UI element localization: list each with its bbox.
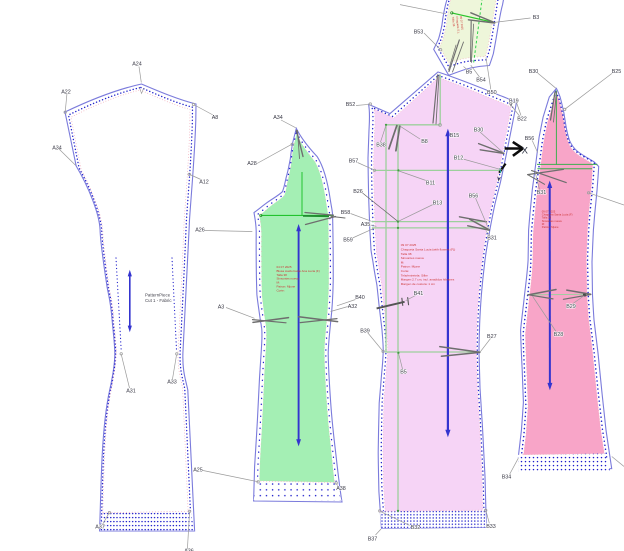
svg-text:B56: B56 — [469, 194, 479, 200]
svg-text:B8: B8 — [421, 139, 428, 145]
svg-text:A25: A25 — [193, 468, 203, 474]
svg-text:B31: B31 — [487, 236, 497, 242]
svg-text:A26: A26 — [195, 228, 205, 234]
svg-text:B15: B15 — [450, 133, 460, 139]
svg-text:A12: A12 — [199, 180, 209, 186]
svg-text:A28: A28 — [247, 161, 257, 167]
svg-text:B13: B13 — [433, 201, 443, 207]
svg-text:B40: B40 — [355, 295, 365, 301]
svg-text:B54: B54 — [476, 78, 486, 84]
svg-text:B53: B53 — [414, 30, 424, 36]
svg-text:B57: B57 — [349, 159, 359, 165]
svg-text:A8: A8 — [212, 115, 219, 121]
svg-text:B34: B34 — [502, 475, 512, 481]
svg-text:Patron: Mjune: Patron: Mjune — [542, 225, 559, 229]
svg-text:A38: A38 — [336, 486, 346, 492]
svg-text:Sinsontes nueva: Sinsontes nueva — [277, 277, 300, 281]
svg-text:B3: B3 — [533, 15, 540, 21]
svg-text:B11: B11 — [426, 181, 435, 187]
svg-text:A22: A22 — [61, 90, 71, 96]
svg-text:Cut 1 - Fabric: Cut 1 - Fabric — [145, 298, 172, 303]
svg-text:A3: A3 — [218, 305, 225, 311]
svg-text:B29: B29 — [566, 304, 576, 310]
svg-text:B56: B56 — [525, 136, 535, 142]
svg-text:X: X — [522, 145, 529, 156]
svg-text:B30: B30 — [474, 128, 484, 134]
svg-text:Sinsontes nueva: Sinsontes nueva — [542, 219, 562, 223]
svg-text:B33: B33 — [486, 524, 496, 530]
svg-text:A34: A34 — [52, 146, 62, 152]
svg-text:B59: B59 — [343, 238, 353, 244]
svg-text:B30: B30 — [529, 69, 539, 75]
svg-text:B25: B25 — [612, 69, 622, 75]
svg-text:PatternPiece: PatternPiece — [145, 293, 171, 298]
svg-text:A24: A24 — [132, 62, 142, 68]
svg-text:A32: A32 — [348, 304, 358, 310]
svg-text:B52: B52 — [346, 102, 356, 108]
svg-text:A35: A35 — [361, 222, 371, 228]
svg-text:B5: B5 — [400, 370, 407, 376]
svg-text:B38: B38 — [376, 143, 386, 149]
svg-text:B28: B28 — [554, 332, 564, 338]
svg-text:B41: B41 — [414, 291, 424, 297]
svg-text:B37: B37 — [368, 537, 378, 543]
svg-text:A37: A37 — [95, 525, 105, 531]
svg-text:B12: B12 — [454, 156, 464, 162]
svg-text:B22: B22 — [517, 117, 527, 123]
svg-text:B31: B31 — [537, 190, 547, 196]
svg-text:B39: B39 — [360, 329, 370, 335]
svg-text:B50: B50 — [487, 90, 497, 96]
svg-text:Corte:: Corte: — [277, 288, 285, 292]
svg-text:A34: A34 — [273, 115, 283, 121]
svg-text:B19: B19 — [509, 99, 519, 105]
svg-text:A31: A31 — [126, 389, 136, 395]
svg-text:B26: B26 — [353, 189, 363, 195]
svg-text:Margen de costura: 1 cm: Margen de costura: 1 cm — [401, 282, 436, 286]
svg-text:Sinsontes nueva: Sinsontes nueva — [401, 256, 424, 260]
svg-text:B5: B5 — [466, 70, 473, 76]
svg-text:B32: B32 — [411, 525, 421, 531]
svg-text:B58: B58 — [341, 210, 351, 216]
svg-text:A33: A33 — [167, 380, 177, 386]
svg-text:B27: B27 — [487, 334, 497, 340]
